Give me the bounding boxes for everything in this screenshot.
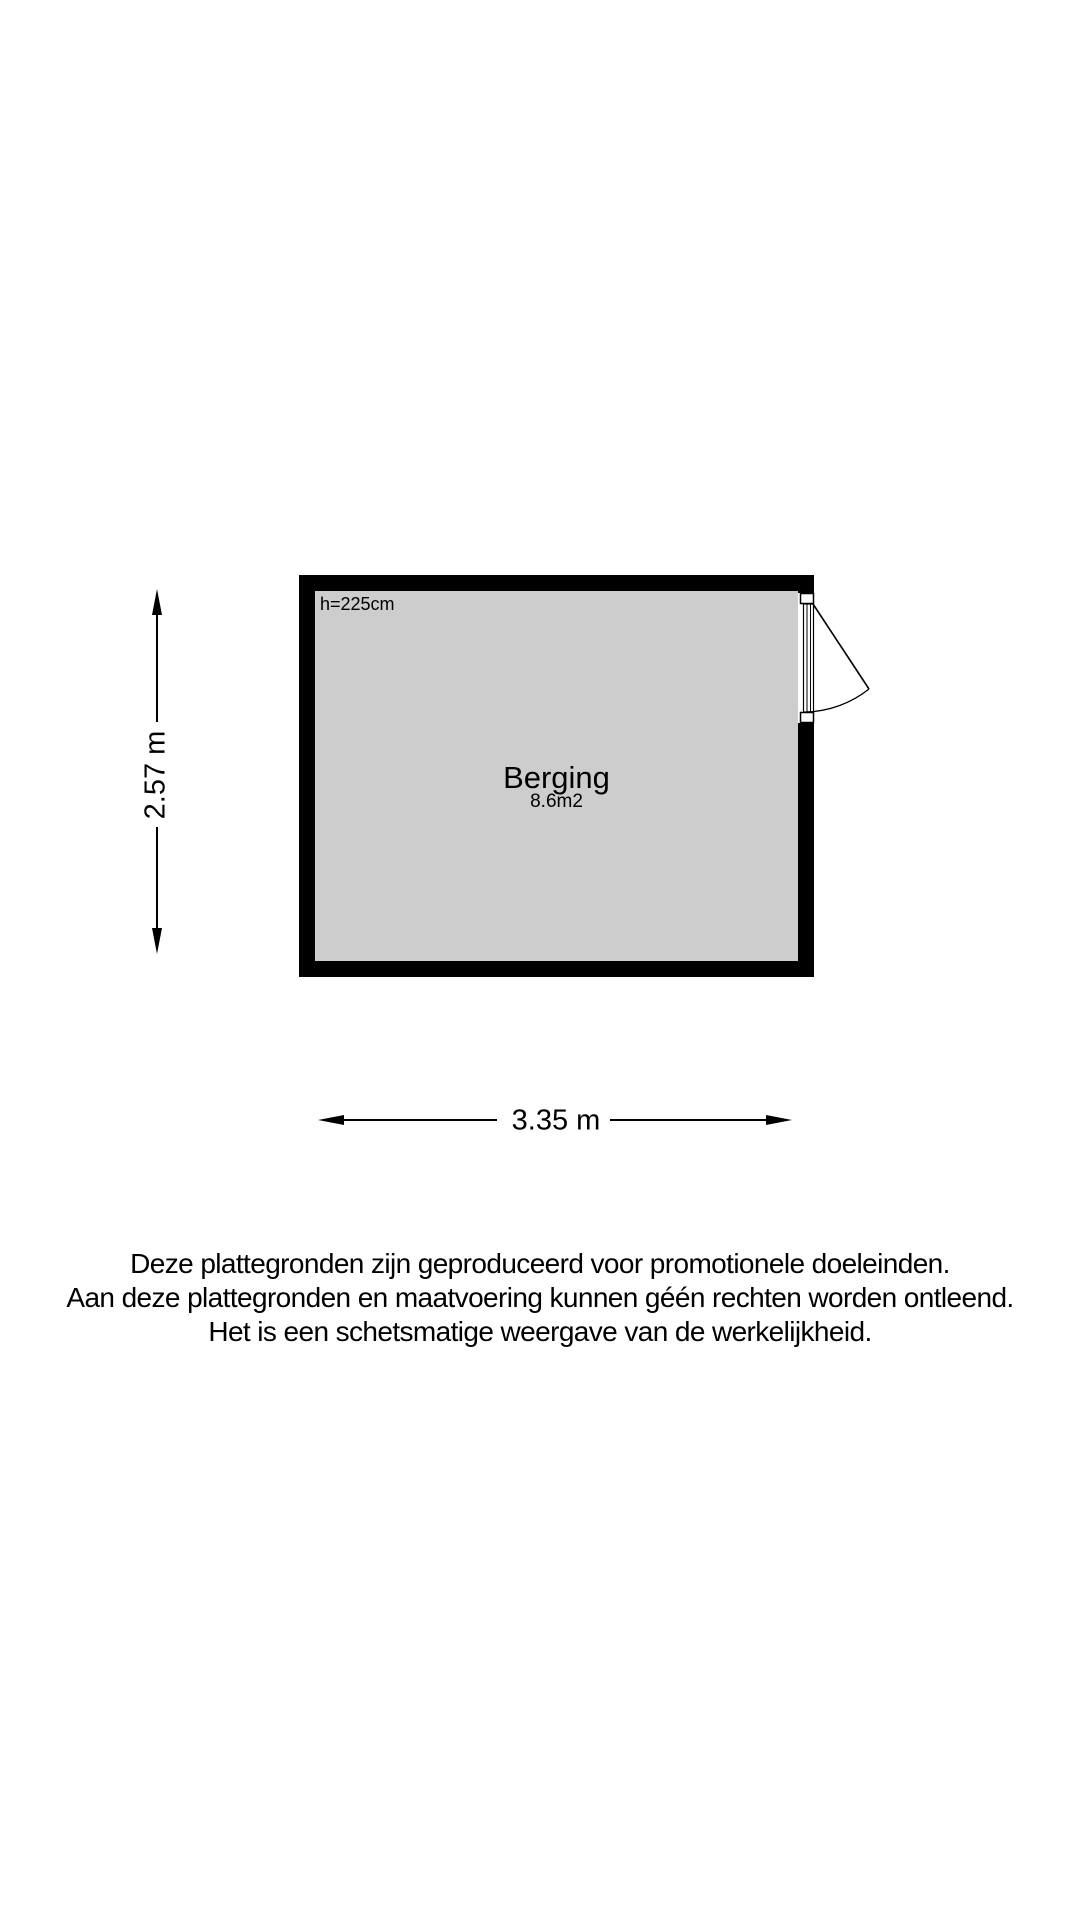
- floor-plan-drawing: [0, 0, 1080, 1920]
- arrowhead-left-icon: [318, 1115, 344, 1125]
- disclaimer-line-3: Het is een schetsmatige weergave van de …: [0, 1315, 1080, 1349]
- dimension-label-vertical: 2.57 m: [142, 731, 171, 820]
- disclaimer: Deze plattegronden zijn geproduceerd voo…: [0, 1247, 1080, 1349]
- disclaimer-line-1: Deze plattegronden zijn geproduceerd voo…: [0, 1247, 1080, 1281]
- room-name-label: Berging: [299, 762, 814, 793]
- arrowhead-up-icon: [152, 589, 162, 615]
- room-area-label: 8.6m2: [299, 792, 814, 811]
- arrowhead-right-icon: [766, 1115, 792, 1125]
- door-jamb-bottom: [801, 713, 814, 723]
- dimension-label-horizontal: 3.35 m: [512, 1107, 601, 1136]
- arrowhead-down-icon: [152, 928, 162, 954]
- door-leaf: [804, 604, 814, 712]
- floorplan-page: h=225cm Berging 8.6m2 2.57 m 3.35 m Deze…: [0, 0, 1080, 1920]
- disclaimer-line-2: Aan deze plattegronden en maatvoering ku…: [0, 1281, 1080, 1315]
- door-swing-line: [813, 604, 869, 689]
- door: [798, 593, 869, 723]
- ceiling-height-label: h=225cm: [320, 595, 395, 613]
- door-jamb-top: [801, 594, 814, 604]
- door-swing-arc: [806, 689, 869, 712]
